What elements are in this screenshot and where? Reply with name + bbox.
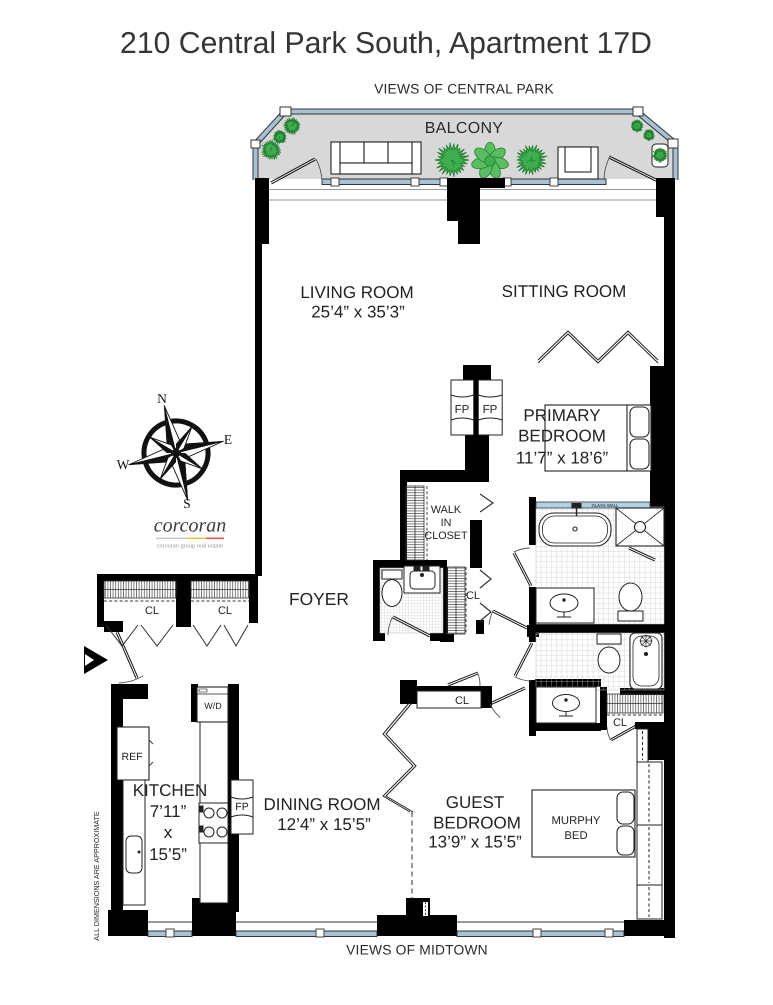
svg-text:PRIMARY: PRIMARY — [523, 406, 600, 425]
svg-text:FP: FP — [235, 801, 248, 813]
svg-text:11’7” x 18’6”: 11’7” x 18’6” — [516, 449, 609, 468]
svg-text:S: S — [183, 496, 191, 511]
svg-text:W/D: W/D — [204, 701, 222, 711]
svg-text:25’4” x 35’3”: 25’4” x 35’3” — [311, 303, 405, 322]
svg-text:BED: BED — [564, 830, 587, 842]
svg-text:CL: CL — [466, 590, 480, 602]
svg-text:E: E — [224, 432, 232, 447]
svg-text:DINING ROOM: DINING ROOM — [263, 795, 380, 814]
svg-text:FP: FP — [455, 404, 470, 416]
svg-text:corcoran group real estate: corcoran group real estate — [157, 543, 223, 550]
svg-text:CL: CL — [218, 605, 232, 617]
svg-text:CL: CL — [613, 717, 627, 729]
svg-text:N: N — [157, 391, 167, 406]
svg-text:FP: FP — [483, 404, 498, 416]
svg-text:12’4” x 15’5”: 12’4” x 15’5” — [277, 815, 371, 834]
svg-text:REF: REF — [122, 751, 143, 763]
svg-text:SITTING ROOM: SITTING ROOM — [502, 282, 627, 301]
svg-text:15’5”: 15’5” — [149, 845, 187, 864]
svg-text:CL: CL — [145, 605, 159, 617]
svg-text:KITCHEN: KITCHEN — [133, 781, 208, 800]
svg-text:BEDROOM: BEDROOM — [433, 814, 521, 833]
svg-text:VIEWS OF CENTRAL PARK: VIEWS OF CENTRAL PARK — [374, 82, 554, 97]
svg-text:ALL DIMENSIONS ARE APPROXIMATE: ALL DIMENSIONS ARE APPROXIMATE — [92, 811, 101, 941]
svg-text:IN: IN — [441, 517, 452, 529]
svg-text:CL: CL — [455, 695, 469, 707]
svg-text:13’9” x 15’5”: 13’9” x 15’5” — [428, 833, 522, 852]
svg-text:corcoran: corcoran — [154, 515, 227, 537]
svg-text:210 Central Park South, Apartm: 210 Central Park South, Apartment 17D — [120, 27, 652, 60]
svg-text:WALK: WALK — [431, 504, 462, 516]
svg-text:CLOSET: CLOSET — [424, 530, 468, 542]
svg-text:W: W — [117, 457, 130, 472]
svg-text:x: x — [164, 823, 173, 842]
svg-text:MURPHY: MURPHY — [552, 815, 601, 827]
svg-text:GLASS WALL: GLASS WALL — [591, 503, 619, 508]
svg-text:7’11”: 7’11” — [150, 802, 187, 821]
svg-text:BALCONY: BALCONY — [425, 120, 504, 137]
svg-text:VIEWS OF MIDTOWN: VIEWS OF MIDTOWN — [346, 943, 488, 958]
svg-text:GUEST: GUEST — [446, 793, 505, 812]
svg-text:LIVING ROOM: LIVING ROOM — [300, 283, 413, 302]
svg-text:FOYER: FOYER — [289, 589, 349, 609]
svg-text:BEDROOM: BEDROOM — [518, 427, 606, 446]
